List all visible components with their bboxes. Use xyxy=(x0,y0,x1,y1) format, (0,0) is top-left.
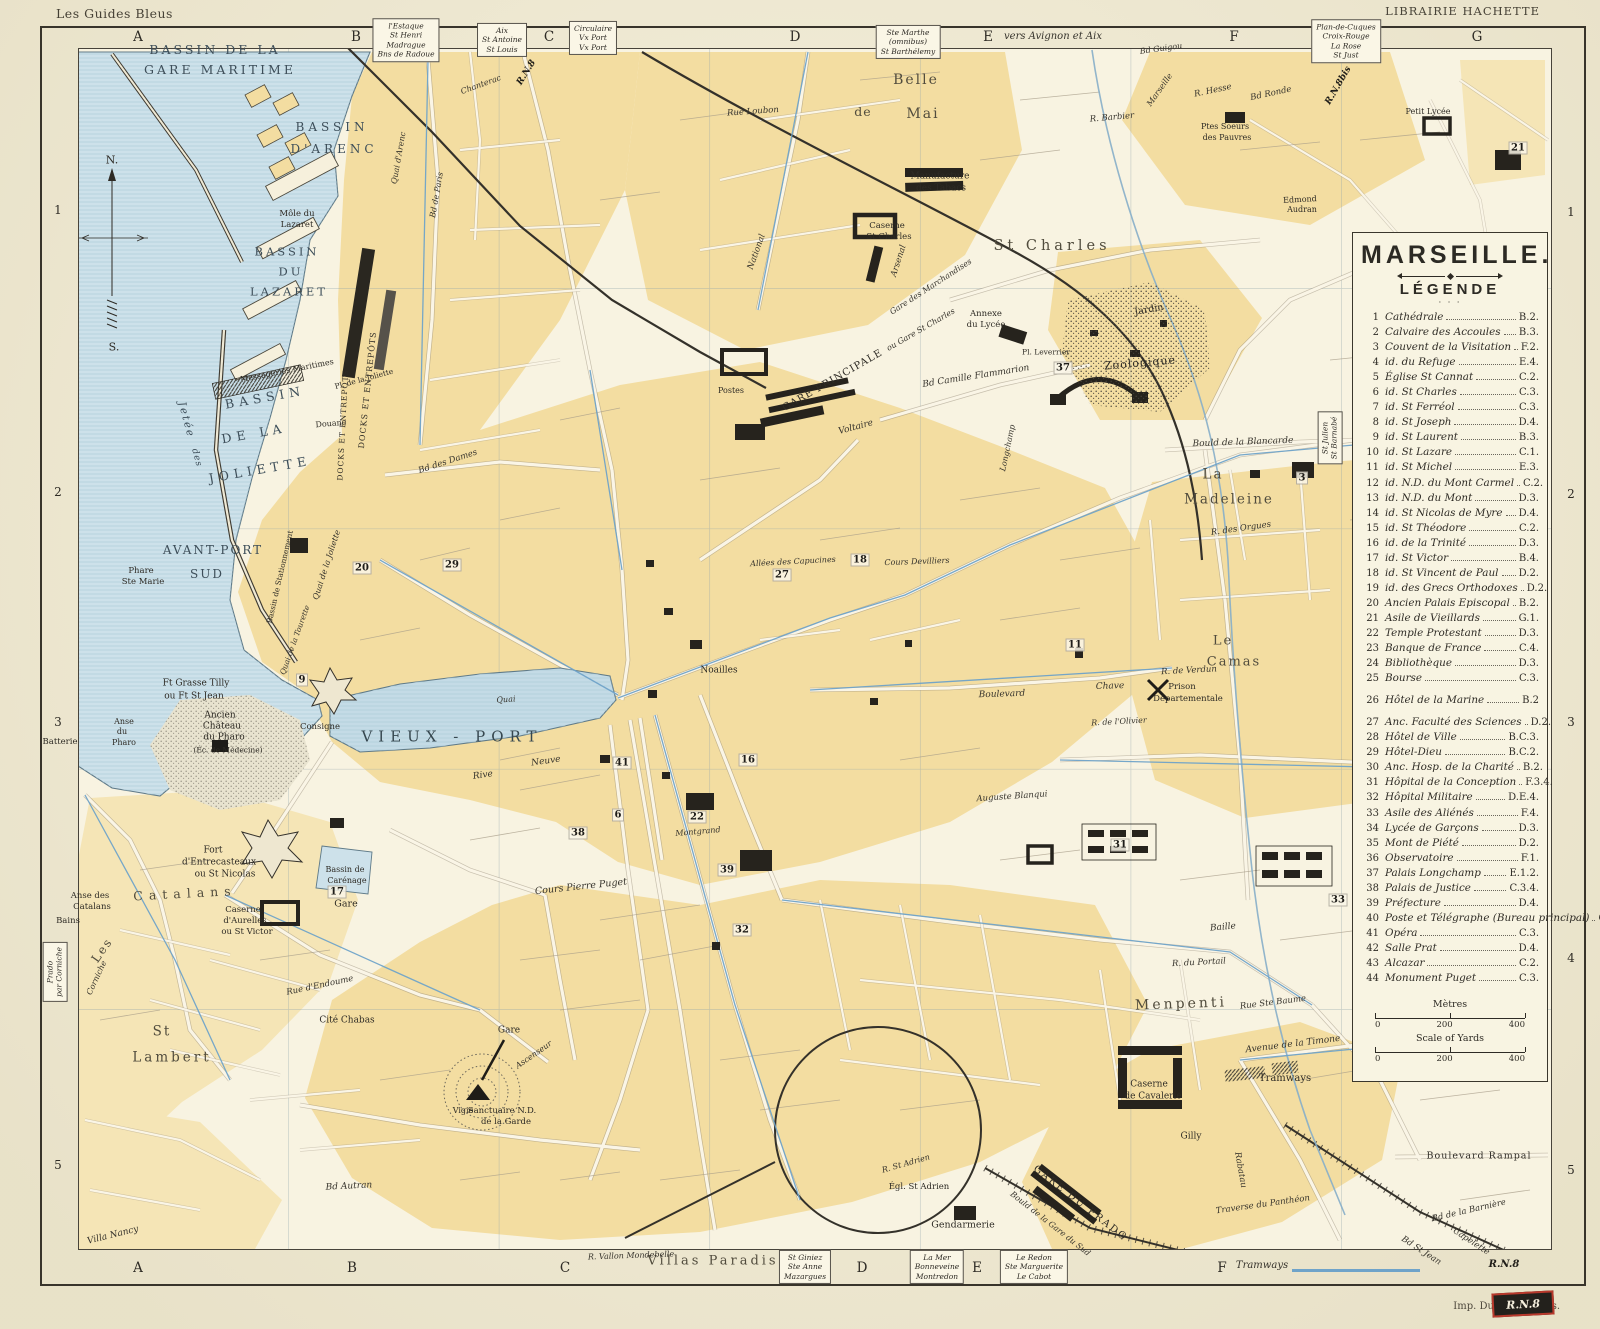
route-destination-box: La MerBonneveineMontredon xyxy=(910,1250,964,1284)
legend-item: 19id. des Grecs OrthodoxesD.2. xyxy=(1361,582,1539,597)
legend-item: 36ObservatoireF.1. xyxy=(1361,852,1539,867)
legend-item: 34Lycée de GarçonsD.3. xyxy=(1361,822,1539,837)
route-destination-box: St GiniezSte AnneMazargues xyxy=(779,1250,831,1284)
legend-items: 1CathédraleB.2.2Calvaire des AccoulesB.3… xyxy=(1361,311,1539,987)
grid-number-right: 1 xyxy=(1567,205,1575,219)
grid-letter-bottom: F xyxy=(1217,1260,1226,1276)
legend-item: 5Église St CannatC.2. xyxy=(1361,371,1539,386)
legend-item: 35Mont de PiétéD.2. xyxy=(1361,837,1539,852)
grid-letter-bottom: D xyxy=(857,1260,868,1276)
scale-bar-yards xyxy=(1375,1045,1525,1053)
gutter-label: R.N.8 xyxy=(1489,1260,1520,1270)
legend-item: 26Hôtel de la MarineB.2 xyxy=(1361,694,1539,709)
legend-item: 13id. N.D. du MontD.3. xyxy=(1361,492,1539,507)
legend-item: 40Poste et Télégraphe (Bureau principal)… xyxy=(1361,912,1539,927)
legend-item: 27Anc. Faculté des SciencesD.2. xyxy=(1361,716,1539,731)
map-artwork xyxy=(78,48,1552,1250)
legend-item: 2Calvaire des AccoulesB.3. xyxy=(1361,326,1539,341)
legend-item: 32Hôpital MilitaireD.E.4. xyxy=(1361,791,1539,806)
scale-yards-label: Scale of Yards xyxy=(1375,1033,1525,1044)
scale-bars: Mètres 0200400 Scale of Yards 0200400 xyxy=(1375,999,1525,1064)
grid-letter-bottom: E xyxy=(972,1260,982,1276)
legend-item: 12id. N.D. du Mont CarmelC.2. xyxy=(1361,477,1539,492)
map-label: Villas Paradis xyxy=(647,1255,778,1268)
map-label: Bains xyxy=(56,917,80,926)
grid-letter-top: E xyxy=(983,29,993,45)
grid-letter-top: D xyxy=(790,29,801,45)
grid-number-right: 4 xyxy=(1567,951,1575,965)
publisher-title: LIBRAIRIE HACHETTE xyxy=(1385,4,1540,18)
grid-number-left: 2 xyxy=(54,485,62,499)
legend-item: 18id. St Vincent de PaulD.2. xyxy=(1361,567,1539,582)
legend-ornament xyxy=(1395,273,1505,279)
legend-item: 16id. de la TrinitéD.3. xyxy=(1361,537,1539,552)
legend-item: 37Palais LongchampE.1.2. xyxy=(1361,867,1539,882)
legend-item: 43AlcazarC.2. xyxy=(1361,957,1539,972)
legend-item: 24BibliothèqueD.3. xyxy=(1361,657,1539,672)
scale-metres-ticks: 0200400 xyxy=(1375,1020,1525,1030)
legend-item: 25BourseC.3. xyxy=(1361,672,1539,687)
road-number-badge: R.N.8 xyxy=(1491,1290,1554,1317)
legend-item: 6id. St CharlesC.3. xyxy=(1361,386,1539,401)
legend-item: 23Banque de FranceC.4. xyxy=(1361,642,1539,657)
legend-item: 44Monument PugetC.3. xyxy=(1361,972,1539,987)
series-title: Les Guides Bleus xyxy=(56,6,173,21)
grid-letter-top: A xyxy=(133,29,143,45)
grid-number-right: 5 xyxy=(1567,1163,1575,1177)
map-label: R. Vallon Mondebelle xyxy=(588,1250,675,1261)
grid-letter-top: G xyxy=(1472,29,1483,45)
legend-subtitle: LÉGENDE xyxy=(1361,281,1539,298)
legend-panel: MARSEILLE. LÉGENDE · · · 1CathédraleB.2.… xyxy=(1352,232,1548,1082)
route-destination-box: Pradopar Corniche xyxy=(43,942,68,1002)
legend-item: 21Asile de VieillardsG.1. xyxy=(1361,612,1539,627)
legend-item: 15id. St ThéodoreC.2. xyxy=(1361,522,1539,537)
legend-item: 33Asile des AliénésF.4. xyxy=(1361,807,1539,822)
scale-metres-label: Mètres xyxy=(1375,999,1525,1010)
grid-number-left: 1 xyxy=(54,203,62,217)
legend-item: 9id. St LaurentB.3. xyxy=(1361,431,1539,446)
grid-letter-bottom: C xyxy=(560,1260,570,1276)
legend-item: 28Hôtel de VilleB.C.3. xyxy=(1361,731,1539,746)
gutter-label: vers Avignon et Aix xyxy=(1004,32,1102,42)
legend-ornament-dots: · · · xyxy=(1361,299,1539,307)
legend-item: 4id. du RefugeE.4. xyxy=(1361,356,1539,371)
legend-item: 7id. St FerréolC.3. xyxy=(1361,401,1539,416)
legend-item: 17id. St VictorB.4. xyxy=(1361,552,1539,567)
legend-item: 30Anc. Hosp. de la CharitéB.2. xyxy=(1361,761,1539,776)
legend-item: 8id. St JosephD.4. xyxy=(1361,416,1539,431)
map-label: Batterie xyxy=(43,738,78,747)
grid-number-right: 3 xyxy=(1567,715,1575,729)
grid-number-right: 2 xyxy=(1567,487,1575,501)
legend-item: 29Hôtel-DieuB.C.2. xyxy=(1361,746,1539,761)
tramways-underline xyxy=(1292,1269,1420,1272)
route-destination-box: Le RedonSte MargueriteLe Cabot xyxy=(1000,1250,1068,1284)
grid-letter-bottom: B xyxy=(347,1260,357,1276)
legend-item: 22Temple ProtestantD.3. xyxy=(1361,627,1539,642)
legend-item: 20Ancien Palais EpiscopalB.2. xyxy=(1361,597,1539,612)
legend-item: 11id. St MichelE.3. xyxy=(1361,461,1539,476)
legend-item: 31Hôpital de la ConceptionF.3.4. xyxy=(1361,776,1539,791)
grid-letter-top: C xyxy=(544,29,554,45)
legend-item: 1CathédraleB.2. xyxy=(1361,311,1539,326)
map-sheet: Les Guides Bleus LIBRAIRIE HACHETTE Imp.… xyxy=(0,0,1600,1329)
scale-yards-ticks: 0200400 xyxy=(1375,1054,1525,1064)
legend-item: 39PréfectureD.4. xyxy=(1361,897,1539,912)
legend-item: 38Palais de JusticeC.3.4. xyxy=(1361,882,1539,897)
legend-title: MARSEILLE. xyxy=(1361,241,1539,270)
legend-item: 14id. St Nicolas de MyreD.4. xyxy=(1361,507,1539,522)
grid-number-left: 4 xyxy=(54,951,62,965)
grid-number-left: 5 xyxy=(54,1158,62,1172)
grid-number-left: 3 xyxy=(54,715,62,729)
grid-letter-bottom: A xyxy=(133,1260,143,1276)
legend-item: 10id. St LazareC.1. xyxy=(1361,446,1539,461)
grid-letter-top: B xyxy=(351,29,361,45)
legend-item: 41OpéraC.3. xyxy=(1361,927,1539,942)
legend-item: 42Salle PratD.4. xyxy=(1361,942,1539,957)
gutter-label: Tramways xyxy=(1236,1261,1288,1271)
grid-letter-top: F xyxy=(1229,29,1238,45)
scale-bar-metres xyxy=(1375,1011,1525,1019)
legend-item: 3Couvent de la VisitationF.2. xyxy=(1361,341,1539,356)
